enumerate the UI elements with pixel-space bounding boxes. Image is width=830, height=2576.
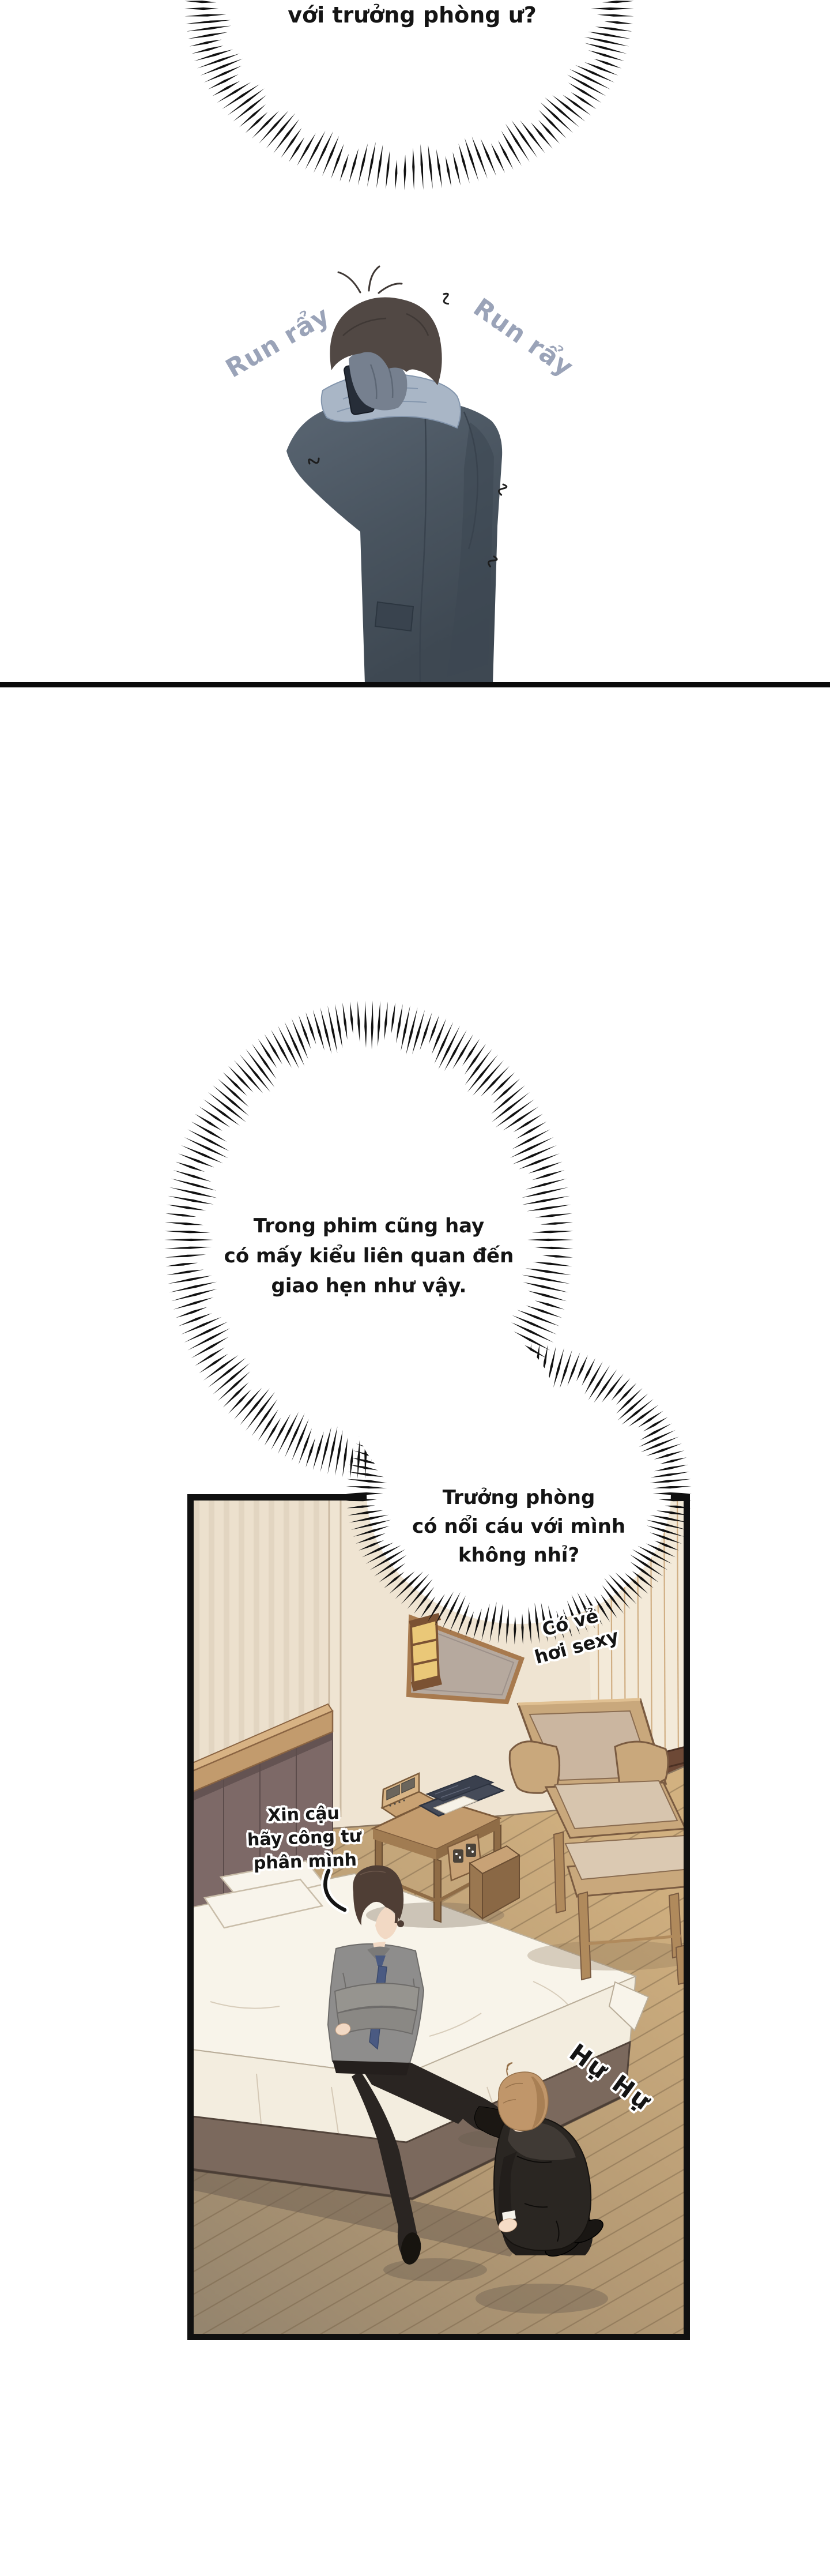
stray-hair-strands bbox=[338, 266, 402, 293]
burst-bubble-top bbox=[180, 0, 639, 197]
crossed-arms bbox=[334, 1983, 419, 2037]
thought-main-text: Trong phim cũng hay có mấy kiểu liên qua… bbox=[219, 1211, 519, 1301]
comic-page: Run rẩy Run rẩy bbox=[0, 0, 830, 2576]
speech-top-text: với trưởng phòng ư? bbox=[262, 2, 562, 28]
thought-sub-text: Trưởng phòng có nổi cáu với mình không n… bbox=[386, 1483, 651, 1570]
speech-note-tail bbox=[320, 1868, 355, 1916]
speech-note-text: Xin cậu hãy công tư phân mình bbox=[217, 1800, 392, 1876]
armrest-left bbox=[510, 1742, 559, 1793]
coat-pocket bbox=[375, 602, 413, 631]
panel-divider bbox=[0, 682, 830, 687]
bubble-merge bbox=[354, 1321, 556, 1499]
